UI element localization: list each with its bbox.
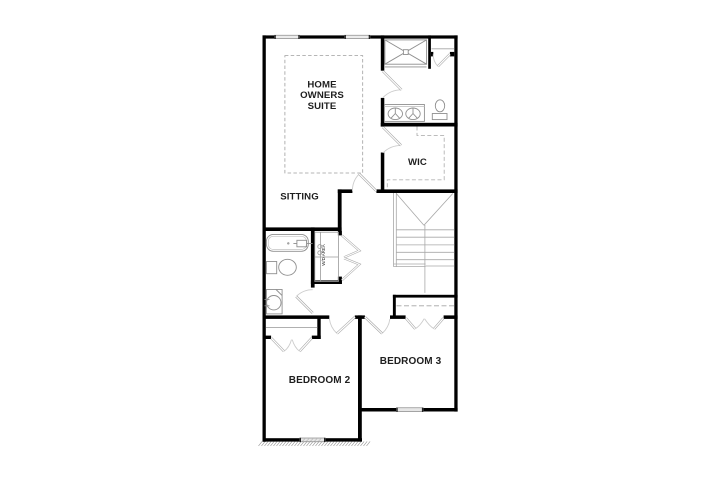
svg-text:SITTING: SITTING [280, 191, 319, 202]
svg-text:BEDROOM 2: BEDROOM 2 [289, 375, 351, 386]
svg-text:OWNERS: OWNERS [300, 90, 344, 101]
svg-text:W/D AREA: W/D AREA [321, 244, 326, 266]
svg-text:WIC: WIC [408, 157, 427, 168]
svg-text:HOME: HOME [307, 80, 337, 91]
svg-text:BEDROOM 3: BEDROOM 3 [380, 356, 442, 367]
svg-text:SUITE: SUITE [308, 101, 337, 112]
